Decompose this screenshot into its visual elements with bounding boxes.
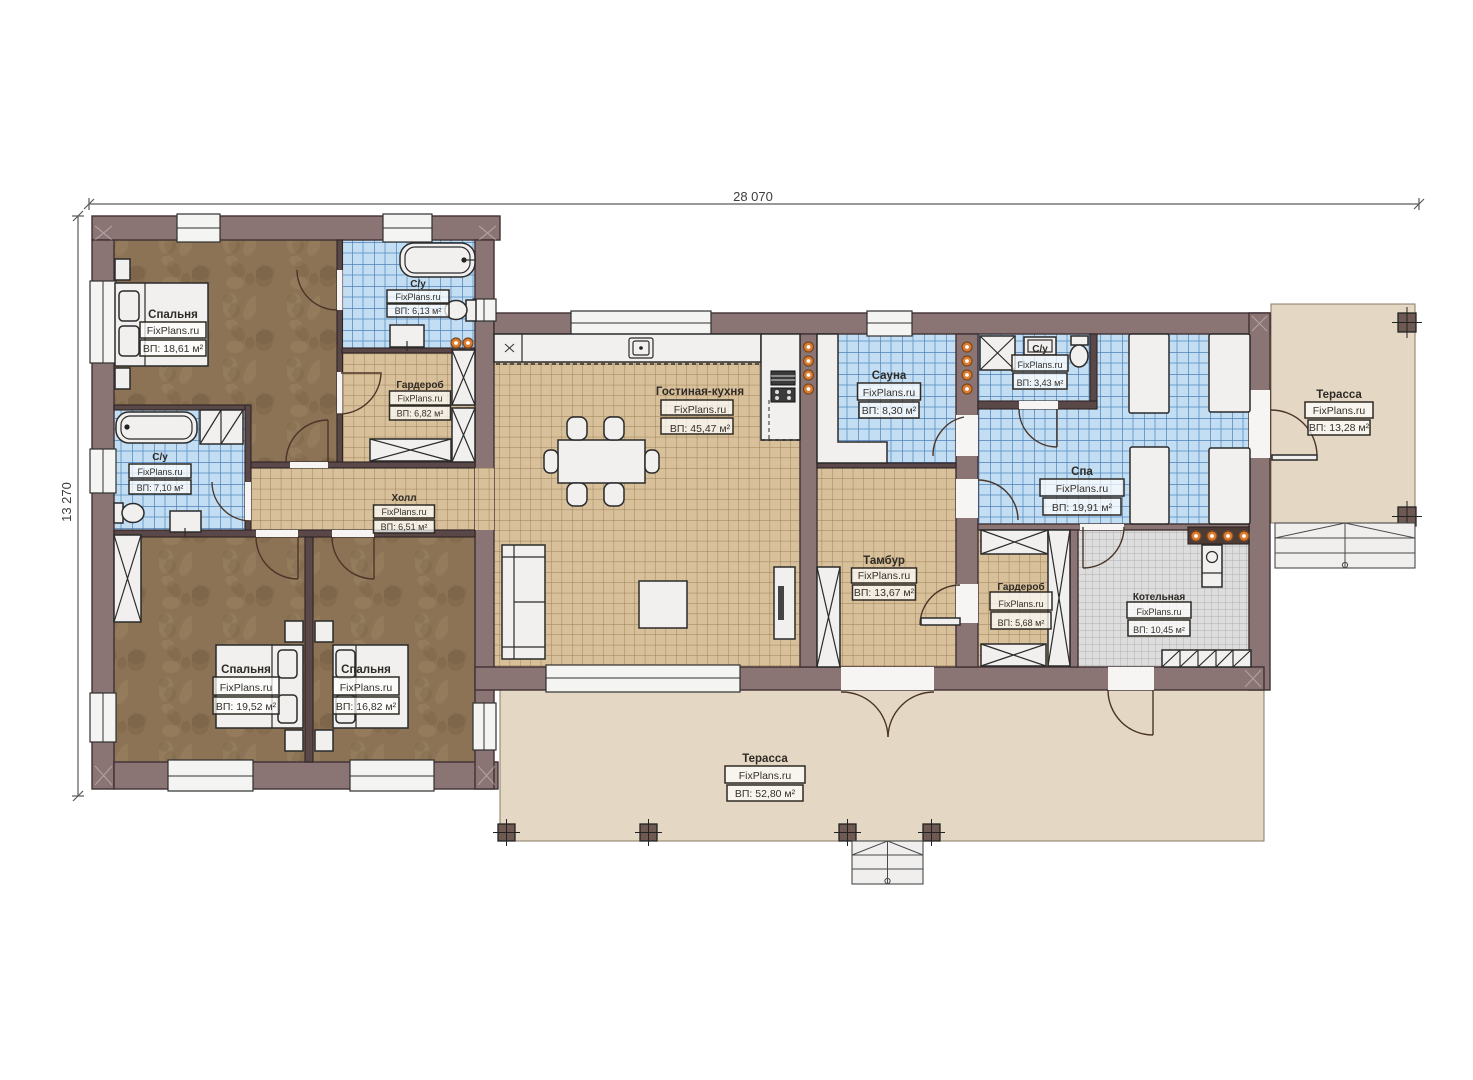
svg-text:FixPlans.ru: FixPlans.ru — [137, 467, 182, 477]
svg-text:FixPlans.ru: FixPlans.ru — [739, 770, 792, 782]
svg-text:ВП: 5,68 м²: ВП: 5,68 м² — [998, 618, 1045, 628]
svg-text:FixPlans.ru: FixPlans.ru — [674, 404, 727, 416]
svg-text:FixPlans.ru: FixPlans.ru — [998, 599, 1043, 609]
svg-text:Гардероб: Гардероб — [396, 379, 443, 391]
svg-text:FixPlans.ru: FixPlans.ru — [1136, 607, 1181, 617]
svg-text:Терасса: Терасса — [1316, 389, 1362, 401]
svg-text:FixPlans.ru: FixPlans.ru — [381, 507, 426, 517]
svg-text:ВП: 19,52 м²: ВП: 19,52 м² — [216, 701, 277, 713]
svg-text:FixPlans.ru: FixPlans.ru — [858, 570, 911, 582]
svg-text:Тамбур: Тамбур — [863, 555, 905, 567]
svg-text:FixPlans.ru: FixPlans.ru — [220, 682, 273, 694]
svg-text:С/у: С/у — [152, 452, 168, 463]
svg-text:ВП: 6,13 м²: ВП: 6,13 м² — [395, 306, 442, 316]
svg-text:FixPlans.ru: FixPlans.ru — [1313, 405, 1366, 417]
svg-text:FixPlans.ru: FixPlans.ru — [340, 682, 393, 694]
svg-text:Терасса: Терасса — [742, 753, 788, 765]
svg-text:Гардероб: Гардероб — [997, 581, 1044, 593]
svg-text:Холл: Холл — [391, 493, 416, 504]
svg-text:ВП: 16,82 м²: ВП: 16,82 м² — [336, 701, 397, 713]
svg-text:Спальня: Спальня — [221, 664, 271, 676]
svg-text:FixPlans.ru: FixPlans.ru — [1017, 360, 1062, 370]
svg-text:ВП: 7,10 м²: ВП: 7,10 м² — [137, 483, 184, 493]
svg-text:FixPlans.ru: FixPlans.ru — [397, 394, 442, 404]
svg-text:ВП: 19,91 м²: ВП: 19,91 м² — [1052, 502, 1113, 514]
svg-text:ВП: 45,47 м²: ВП: 45,47 м² — [670, 423, 731, 435]
svg-text:FixPlans.ru: FixPlans.ru — [147, 325, 200, 337]
svg-text:ВП: 8,30 м²: ВП: 8,30 м² — [862, 405, 917, 417]
svg-text:ВП: 13,28 м²: ВП: 13,28 м² — [1309, 422, 1370, 434]
svg-text:ВП: 6,51 м²: ВП: 6,51 м² — [381, 522, 428, 532]
svg-text:Спальня: Спальня — [341, 664, 391, 676]
svg-text:FixPlans.ru: FixPlans.ru — [1056, 483, 1109, 495]
svg-text:13 270: 13 270 — [59, 482, 74, 522]
svg-text:ВП: 6,82 м²: ВП: 6,82 м² — [397, 409, 444, 419]
svg-text:ВП: 52,80 м²: ВП: 52,80 м² — [735, 788, 796, 800]
svg-text:Спальня: Спальня — [148, 309, 198, 321]
svg-text:ВП: 13,67 м²: ВП: 13,67 м² — [854, 587, 915, 599]
svg-text:С/у: С/у — [1032, 344, 1048, 355]
svg-text:FixPlans.ru: FixPlans.ru — [395, 292, 440, 302]
svg-text:ВП: 18,61 м²: ВП: 18,61 м² — [143, 343, 204, 355]
svg-text:Спа: Спа — [1071, 466, 1093, 478]
svg-text:С/у: С/у — [410, 279, 426, 290]
svg-text:ВП: 3,43 м²: ВП: 3,43 м² — [1017, 378, 1064, 388]
svg-text:ВП: 10,45 м²: ВП: 10,45 м² — [1133, 625, 1185, 635]
svg-text:FixPlans.ru: FixPlans.ru — [863, 387, 916, 399]
svg-text:Гостиная-кухня: Гостиная-кухня — [656, 386, 744, 398]
svg-text:28 070: 28 070 — [733, 189, 773, 204]
svg-text:Сауна: Сауна — [872, 370, 907, 382]
